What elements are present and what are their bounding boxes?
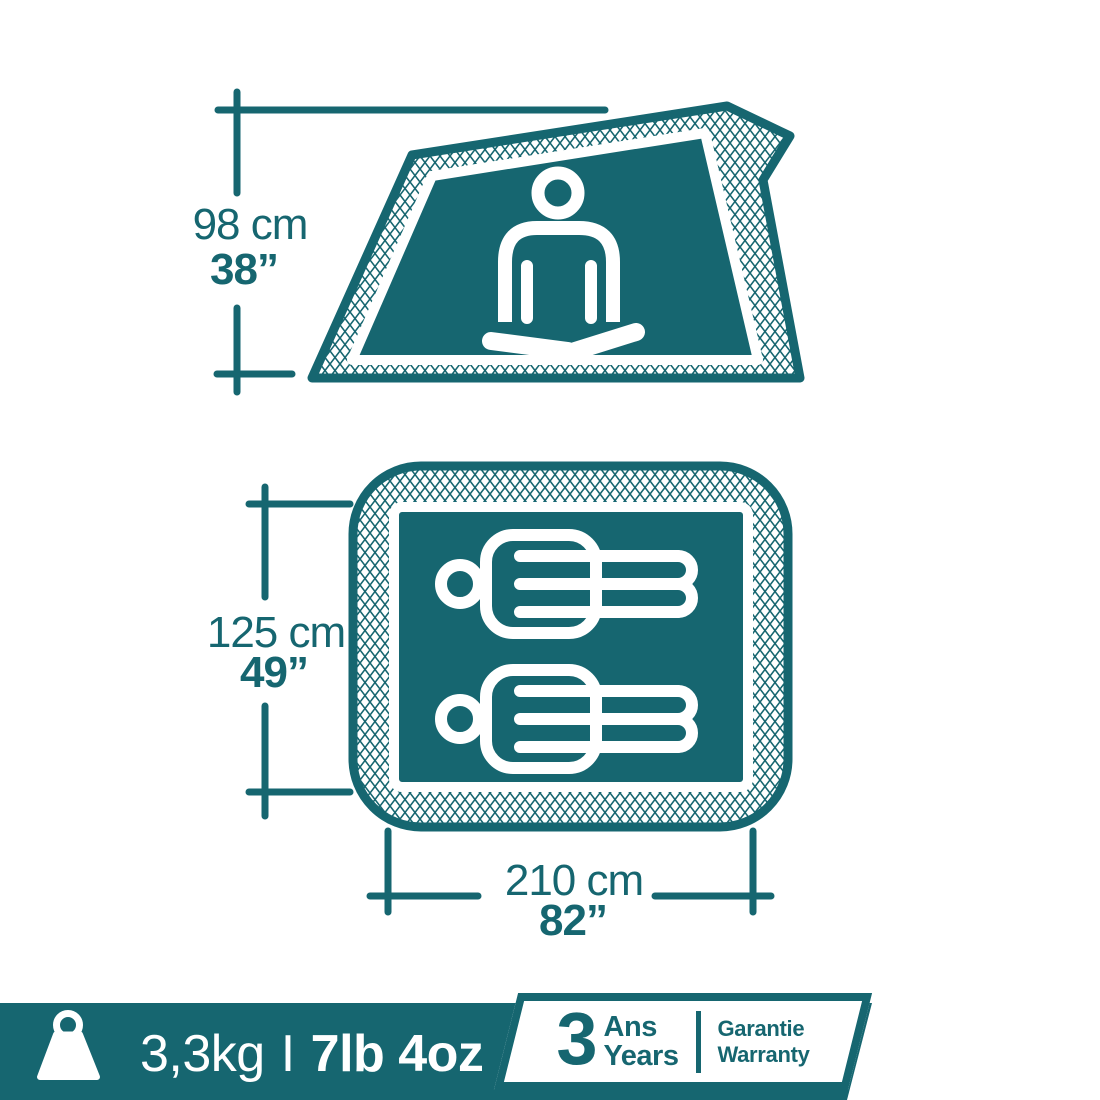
tent-side-view — [312, 106, 800, 378]
weight-icon — [30, 1007, 106, 1083]
height-label-metric: 98 cm — [150, 203, 350, 247]
warranty-label-en: Warranty — [717, 1042, 809, 1067]
length-label-imperial: 82” — [465, 899, 681, 943]
warranty-labels: Garantie Warranty — [717, 1016, 809, 1067]
warranty-years-number: 3 — [556, 1002, 595, 1076]
warranty-unit-en: Years — [604, 1042, 679, 1070]
tent-dimensions-infographic: 98 cm 38” 125 cm 49” 210 cm 82” 3,3kg I … — [0, 0, 1100, 1100]
width-label-imperial: 49” — [174, 651, 374, 695]
tent-floor-plan — [353, 466, 788, 827]
weight-metric: 3,3kg — [140, 1024, 265, 1084]
height-label-imperial: 38” — [150, 248, 338, 292]
weight-text: 3,3kg I 7lb 4oz — [140, 1003, 483, 1100]
warranty-badge: 3 Ans Years Garantie Warranty — [494, 993, 872, 1090]
weight-imperial: 7lb 4oz — [311, 1024, 484, 1084]
warranty-divider — [696, 1011, 701, 1073]
warranty-units: Ans Years — [604, 1013, 679, 1070]
warranty-unit-fr: Ans — [604, 1013, 679, 1041]
warranty-badge-content: 3 Ans Years Garantie Warranty — [514, 1001, 852, 1082]
weight-icon-body — [40, 1035, 97, 1078]
warranty-label-fr: Garantie — [717, 1016, 809, 1041]
weight-separator: I — [281, 1024, 295, 1084]
